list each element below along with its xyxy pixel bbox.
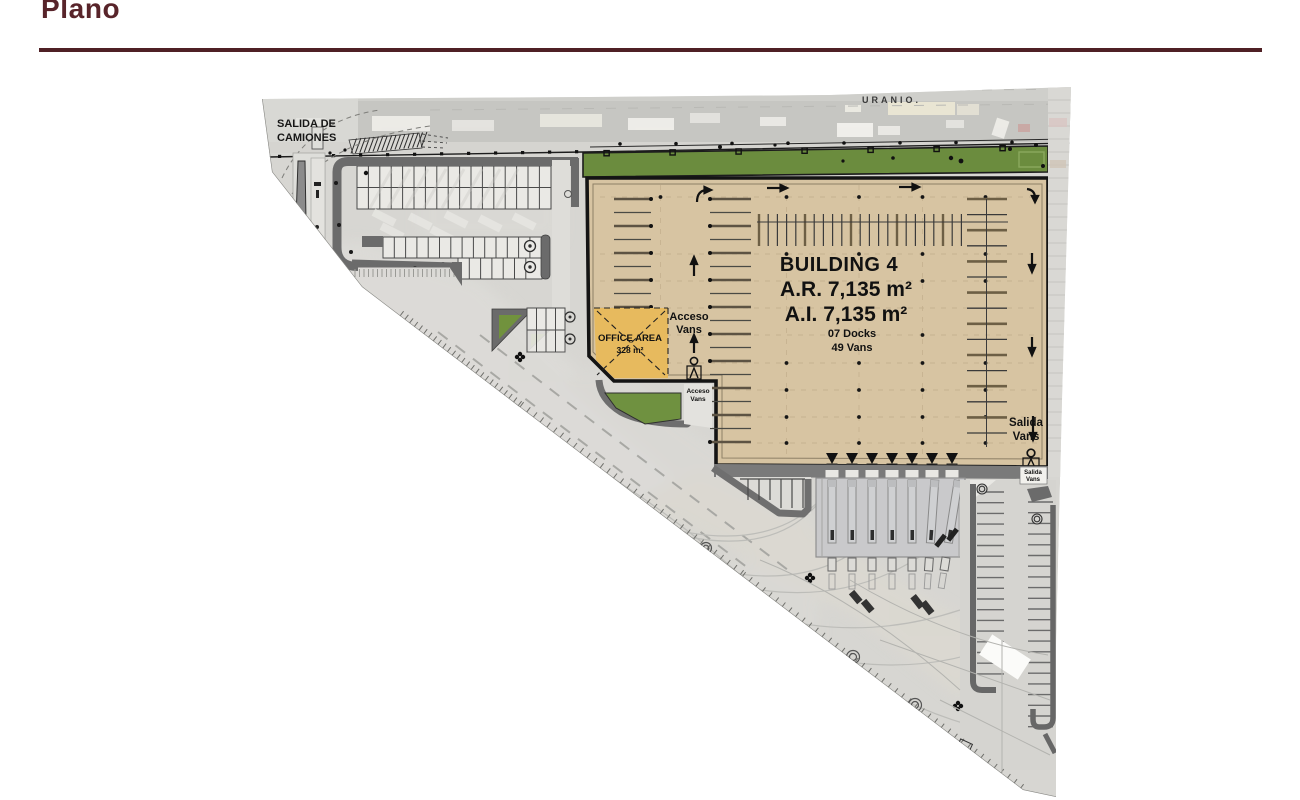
svg-text:49 Vans: 49 Vans [832,342,873,354]
svg-text:Vans: Vans [676,324,702,336]
svg-text:A.R. 7,135 m²: A.R. 7,135 m² [780,278,912,301]
svg-text:CAMIONES: CAMIONES [277,132,336,144]
svg-text:A.I. 7,135 m²: A.I. 7,135 m² [785,303,908,326]
svg-text:Vans: Vans [1013,431,1040,443]
svg-text:URANIO.: URANIO. [862,95,921,105]
svg-text:328 m²: 328 m² [617,345,644,355]
svg-text:OFFICE AREA: OFFICE AREA [598,333,662,344]
svg-text:Vans: Vans [1026,477,1041,483]
svg-text:Salida: Salida [1009,417,1043,429]
svg-text:Acceso: Acceso [686,388,709,395]
svg-text:07 Docks: 07 Docks [828,328,876,340]
svg-text:Acceso: Acceso [669,311,708,323]
svg-text:Salida: Salida [1024,470,1042,476]
svg-text:SALIDA DE: SALIDA DE [277,118,336,130]
svg-text:Vans: Vans [690,396,706,403]
svg-text:BUILDING 4: BUILDING 4 [780,254,899,276]
